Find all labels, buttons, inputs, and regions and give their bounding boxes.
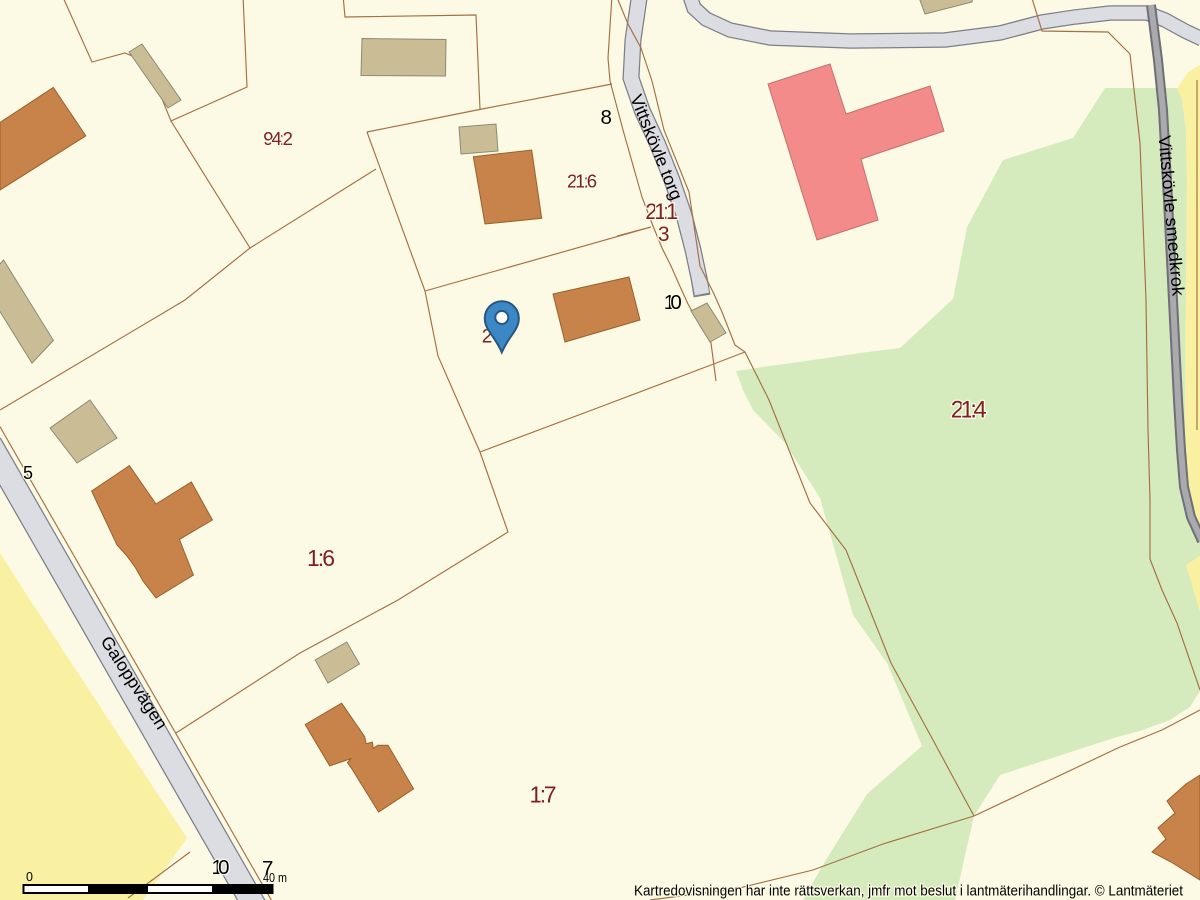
svg-text:5: 5 xyxy=(23,463,33,483)
svg-text:10: 10 xyxy=(212,856,230,879)
svg-text:3: 3 xyxy=(658,223,670,246)
svg-text:8: 8 xyxy=(601,106,612,129)
svg-text:0: 0 xyxy=(26,870,33,884)
svg-text:21:4: 21:4 xyxy=(951,396,987,423)
svg-text:1:6: 1:6 xyxy=(307,545,335,571)
svg-text:10: 10 xyxy=(664,291,682,314)
svg-text:94:2: 94:2 xyxy=(263,128,293,149)
svg-text:21:6: 21:6 xyxy=(567,171,597,192)
svg-text:Kartredovisningen har inte rät: Kartredovisningen har inte rättsverkan, … xyxy=(634,883,1184,900)
svg-text:40 m: 40 m xyxy=(263,871,287,885)
svg-text:1:7: 1:7 xyxy=(530,782,557,808)
svg-text:21:1: 21:1 xyxy=(645,199,678,224)
